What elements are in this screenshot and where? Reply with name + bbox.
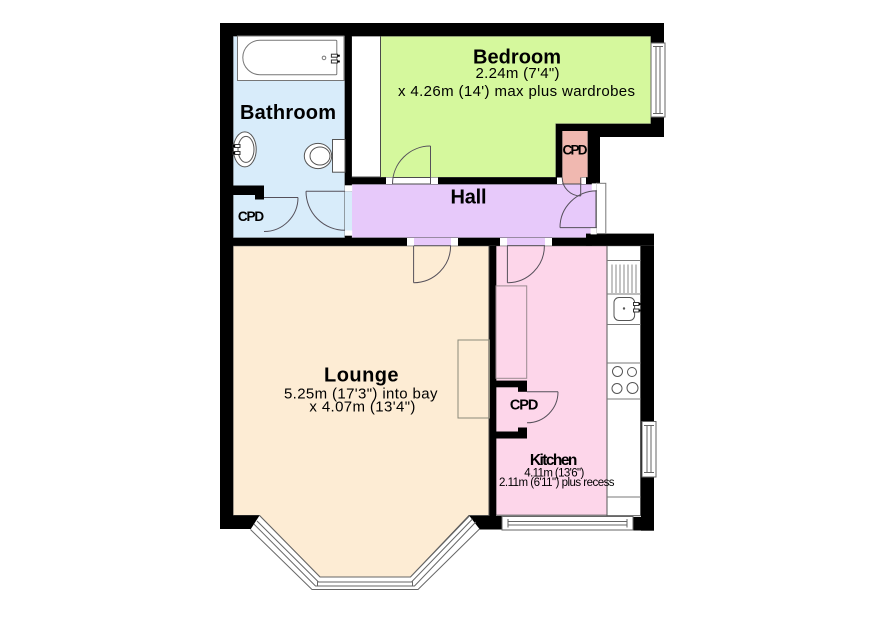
svg-text:CPD: CPD: [563, 143, 588, 158]
svg-text:x 4.07m (13'4"): x 4.07m (13'4"): [309, 398, 415, 415]
svg-text:Lounge: Lounge: [324, 364, 399, 386]
svg-text:CPD: CPD: [238, 209, 264, 224]
svg-text:2.11m (6'11") plus recess: 2.11m (6'11") plus recess: [499, 477, 615, 489]
svg-text:Hall: Hall: [451, 186, 487, 208]
svg-text:2.24m (7'4"): 2.24m (7'4"): [476, 65, 560, 82]
svg-text:CPD: CPD: [510, 398, 539, 414]
svg-text:x 4.26m (14') max plus wardrob: x 4.26m (14') max plus wardrobes: [398, 83, 635, 100]
svg-text:Bathroom: Bathroom: [240, 102, 336, 124]
